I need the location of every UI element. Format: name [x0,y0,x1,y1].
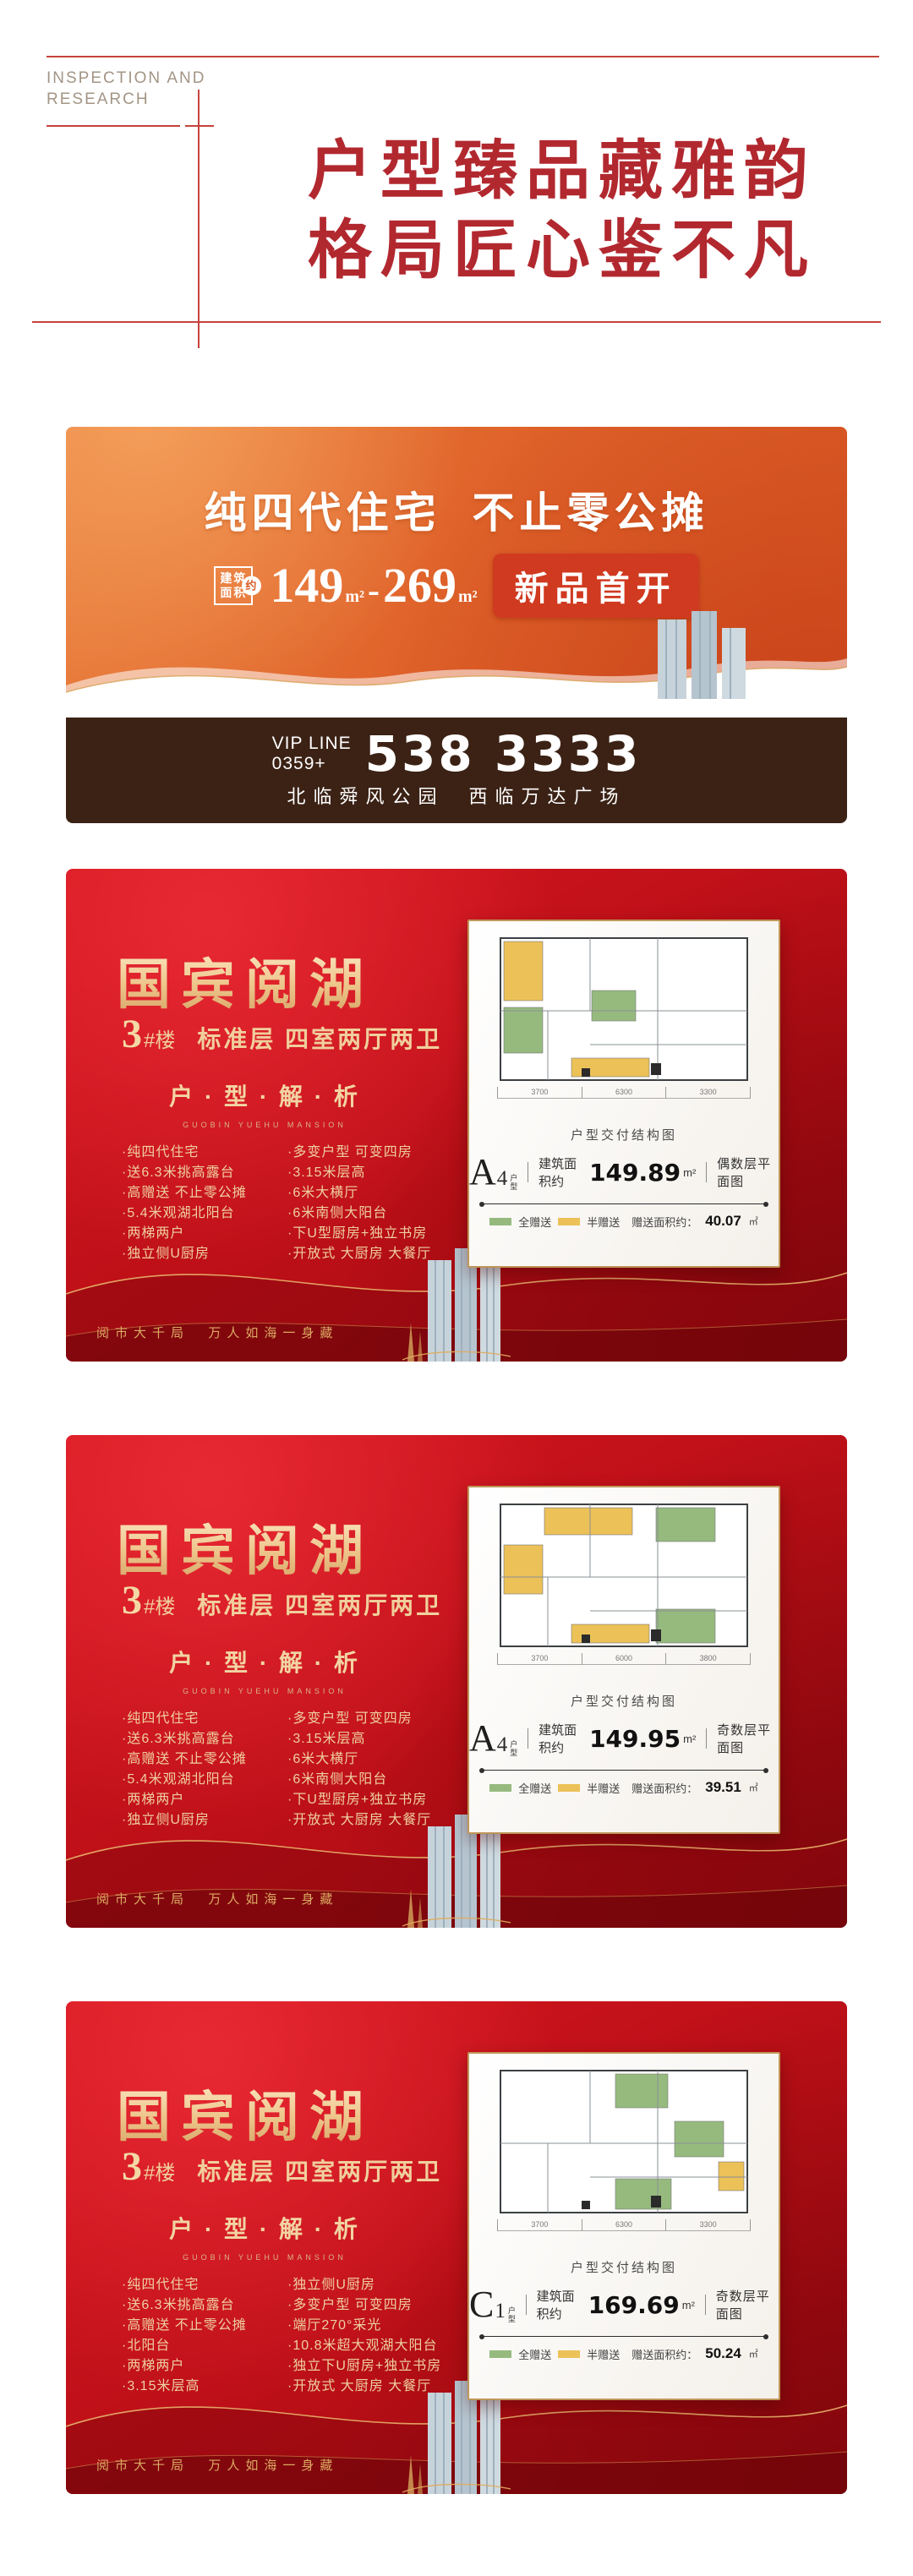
plan-legend: 全赠送 半赠送 赠送面积约： 40.07 ㎡ [469,1213,779,1230]
card-motto: 阅市大千局 万人如海一身藏 [96,1890,338,1907]
dimension-label: 3700 [497,2219,582,2231]
unit-letter: A [469,1720,496,1757]
section-heading: 户 · 型 · 解 · 析 GUOBIN YUEHU MANSION [117,2211,413,2262]
feature-item: ·两梯两户 [122,1224,247,1244]
feature-item: ·纯四代住宅 [122,1709,247,1729]
legend-half-swatch [558,1784,580,1792]
feature-item: ·两梯两户 [122,1790,247,1810]
feature-item: ·10.8米超大观湖大阳台 [287,2336,441,2356]
plan-room-half-gift [504,941,543,1001]
unit-label-1: 户 [508,2306,516,2315]
block-line: 3 #楼 标准层 四室两厅两卫 [122,2143,442,2190]
feature-item: ·高赠送 不止零公摊 [122,2316,247,2336]
area-to: 269 [383,561,456,610]
gift-area-value: 40.07 [705,1213,741,1230]
plan-room-half-gift [719,2162,744,2191]
plan-caption: 户型交付结构图 [469,2258,779,2276]
legend-full-swatch [489,2350,511,2358]
feature-item: ·3.15米层高 [287,1729,431,1749]
features-left: ·纯四代住宅·送6.3米挑高露台·高赠送 不止零公摊·5.4米观湖北阳台·两梯两… [122,1709,247,1831]
legend-half-label: 半赠送 [587,2346,620,2362]
vip-area-code: 0359+ [272,754,352,774]
divider [526,2295,527,2315]
plan-room-full-gift [504,1007,543,1053]
unit-type-label: 户 型 [510,1174,517,1191]
legend-full-label: 全赠送 [518,2346,551,2362]
block-suffix: #楼 [144,1590,175,1619]
unit-type-row: A 4 户 型 建筑面积约 149.89 m² 偶数层平面图 [469,1154,779,1191]
gift-area-value: 50.24 [705,2345,741,2362]
feature-item: ·送6.3米挑高露台 [122,1729,247,1749]
divider [528,1728,528,1749]
plan-legend: 全赠送 半赠送 赠送面积约： 50.24 ㎡ [469,2345,779,2362]
block-line: 3 #楼 标准层 四室两厅两卫 [122,1011,442,1057]
gift-area-label: 赠送面积约： [631,1214,697,1230]
feature-item: ·3.15米层高 [287,1163,431,1183]
dimension-label: 6300 [582,2219,666,2231]
project-title: 国宾阅湖 [117,1508,374,1585]
floor-type-label: 偶数层平面图 [717,1154,779,1190]
unit-area-unit: m² [683,1166,696,1179]
area-label-box: 建筑 面积 约 [214,566,253,605]
unit-label-2: 型 [508,2315,516,2323]
block-subtitle: 标准层 四室两厅两卫 [197,1021,442,1055]
floor-plan-panel: 370063003300 户型交付结构图 C 1 户 型 建筑面积约 169.6… [467,2052,780,2400]
vip-phone-number: 538 3333 [365,729,642,778]
dimension-label: 6300 [582,1087,666,1099]
floor-type-label: 奇数层平面图 [716,2287,779,2322]
divider [528,1162,528,1182]
feature-item: ·纯四代住宅 [122,2275,247,2295]
location-line: 北临舜风公园 西临万达广场 [66,782,847,809]
legend-full-label: 全赠送 [518,1214,551,1230]
area-dash: - [368,570,380,611]
gift-area-label: 赠送面积约： [631,1780,697,1796]
plan-divider [481,2336,767,2337]
unit-cards: 国宾阅湖 3 #楼 标准层 四室两厅两卫 户 · 型 · 解 · 析 GUOBI… [66,869,847,2568]
feature-item: ·独立侧U厨房 [287,2275,441,2295]
plan-room-full-gift [675,2121,724,2157]
section-subtitle: GUOBIN YUEHU MANSION [117,1687,413,1695]
unit-card: 国宾阅湖 3 #楼 标准层 四室两厅两卫 户 · 型 · 解 · 析 GUOBI… [66,2001,847,2494]
features-left: ·纯四代住宅·送6.3米挑高露台·高赠送 不止零公摊·5.4米观湖北阳台·两梯两… [122,1143,247,1264]
feature-item: ·送6.3米挑高露台 [122,1163,247,1183]
features-left: ·纯四代住宅·送6.3米挑高露台·高赠送 不止零公摊·北阳台·两梯两户·3.15… [122,2275,247,2397]
section-title: 户 · 型 · 解 · 析 [117,1078,413,1112]
crosshair-vertical-line [198,90,200,348]
unit-letter: A [469,1154,496,1191]
unit-letter: C [469,2286,494,2323]
unit-number: 4 [497,1167,508,1191]
plan-caption: 户型交付结构图 [469,1126,779,1143]
plan-dimensions: 370063003300 [497,2219,751,2231]
banner-headline: 纯四代住宅 不止零公摊 [66,479,847,540]
feature-item: ·高赠送 不止零公摊 [122,1183,247,1203]
crosshair-tick [185,125,214,127]
page-title-line2: 格局匠心鉴不凡 [308,215,817,287]
feature-item: ·送6.3米挑高露台 [122,2295,247,2316]
eyebrow-underline [46,125,180,127]
unit-area-label: 建筑面积约 [537,2287,586,2322]
floor-plan-drawing [497,1501,751,1650]
eyebrow-label: INSPECTION AND RESEARCH [46,68,205,110]
plan-room-full-gift [656,1508,715,1542]
plan-divider [481,1770,767,1771]
dimension-label: 3300 [665,1087,750,1099]
feature-item: ·多变户型 可变四房 [287,1709,431,1729]
vip-labels: VIP LINE 0359+ [272,734,352,774]
dimension-label: 3700 [497,1653,582,1665]
unit-label-2: 型 [510,1182,517,1191]
divider [706,1728,707,1749]
plan-caption: 户型交付结构图 [469,1692,779,1710]
eyebrow-line1: INSPECTION AND [46,68,205,89]
floor-plan-drawing [497,935,751,1083]
feature-item: ·端厅270°采光 [287,2316,441,2336]
top-rule-line [46,56,879,57]
gift-area-label: 赠送面积约： [631,2346,697,2362]
unit-label-1: 户 [510,1174,517,1182]
dimension-label: 3800 [665,1653,750,1665]
promo-banner-orange: 纯四代住宅 不止零公摊 建筑 面积 约 149 m² - 269 m² [66,427,847,718]
buildings-illustration [658,611,746,699]
feature-item: ·独立侧U厨房 [122,1810,247,1831]
section-title: 户 · 型 · 解 · 析 [117,2211,413,2245]
area-from-unit: m² [345,587,364,607]
dimension-label: 6000 [582,1653,666,1665]
legend-half-label: 半赠送 [587,1780,620,1796]
mid-rule-line [32,321,881,323]
vip-line-label: VIP LINE [272,734,352,754]
page-title: 户型臻品藏雅韵 格局匠心鉴不凡 [211,132,913,291]
block-number: 3 [122,2143,142,2190]
section-heading: 户 · 型 · 解 · 析 GUOBIN YUEHU MANSION [117,1078,413,1129]
unit-label-2: 型 [510,1749,517,1757]
card-motto: 阅市大千局 万人如海一身藏 [96,1323,338,1341]
plan-room-full-gift [656,1609,715,1643]
unit-number: 1 [495,2300,506,2323]
legend-half-swatch [558,1218,580,1225]
unit-label-1: 户 [510,1740,517,1749]
plan-room-half-gift [544,1508,632,1535]
feature-item: ·3.15米层高 [122,2377,247,2397]
plan-room-full-gift [592,991,636,1021]
gift-area-unit: ㎡ [749,1214,758,1228]
gift-area-unit: ㎡ [749,2347,758,2360]
feature-item: ·5.4米观湖北阳台 [122,1203,247,1224]
unit-number: 4 [497,1733,508,1757]
divider [706,1162,707,1182]
unit-area-value: 149.89 [589,1159,681,1187]
plan-divider [481,1203,767,1204]
area-range: 建筑 面积 约 149 m² - 269 m² [214,561,477,611]
feature-item: ·独立侧U厨房 [122,1244,247,1264]
unit-card: 国宾阅湖 3 #楼 标准层 四室两厅两卫 户 · 型 · 解 · 析 GUOBI… [66,1435,847,1928]
unit-area-value: 169.69 [588,2291,680,2319]
unit-area-label: 建筑面积约 [539,1154,587,1190]
project-title: 国宾阅湖 [117,941,374,1019]
page-title-line1: 户型臻品藏雅韵 [308,135,817,207]
eyebrow-line2: RESEARCH [46,89,205,110]
feature-item: ·6米南侧大阳台 [287,1770,431,1790]
divider [705,2295,706,2315]
floor-plan-drawing [497,2067,751,2216]
legend-half-label: 半赠送 [587,1214,620,1230]
plan-room-full-gift [615,2074,668,2108]
block-suffix: #楼 [144,1023,175,1053]
unit-area-unit: m² [682,2299,695,2311]
promo-banner: 纯四代住宅 不止零公摊 建筑 面积 约 149 m² - 269 m² [66,427,847,823]
plan-room-half-gift [504,1545,543,1594]
vip-row: VIP LINE 0359+ 538 3333 [66,718,847,778]
gift-area-value: 39.51 [705,1779,741,1796]
contact-band: VIP LINE 0359+ 538 3333 北临舜风公园 西临万达广场 [66,718,847,823]
feature-item: ·北阳台 [122,2336,247,2356]
wave-decoration [66,608,847,718]
block-subtitle: 标准层 四室两厅两卫 [197,1587,442,1621]
card-motto: 阅市大千局 万人如海一身藏 [96,2456,338,2474]
block-line: 3 #楼 标准层 四室两厅两卫 [122,1577,442,1624]
block-number: 3 [122,1577,142,1624]
block-suffix: #楼 [144,2156,175,2186]
dimension-label: 3700 [497,1087,582,1099]
unit-type-label: 户 型 [508,2306,516,2323]
plan-legend: 全赠送 半赠送 赠送面积约： 39.51 ㎡ [469,1779,779,1796]
unit-type-row: A 4 户 型 建筑面积约 149.95 m² 奇数层平面图 [469,1720,779,1757]
unit-type-row: C 1 户 型 建筑面积约 169.69 m² 奇数层平面图 [469,2286,779,2323]
project-title: 国宾阅湖 [117,2074,374,2152]
floor-plan-panel: 370063003300 户型交付结构图 A 4 户 型 建筑面积约 149.8… [467,920,780,1268]
poster-page: INSPECTION AND RESEARCH 户型臻品藏雅韵 格局匠心鉴不凡 … [0,0,913,2576]
feature-item: ·纯四代住宅 [122,1143,247,1163]
section-title: 户 · 型 · 解 · 析 [117,1645,413,1678]
area-to-unit: m² [458,587,478,607]
floor-plan-panel: 370060003800 户型交付结构图 A 4 户 型 建筑面积约 149.9… [467,1486,780,1834]
unit-type-label: 户 型 [510,1740,517,1757]
plan-room-full-gift [615,2179,671,2209]
approx-badge: 约 [242,576,261,596]
legend-half-swatch [558,2350,580,2358]
gift-area-unit: ㎡ [749,1781,758,1794]
unit-card: 国宾阅湖 3 #楼 标准层 四室两厅两卫 户 · 型 · 解 · 析 GUOBI… [66,869,847,1362]
plan-dimensions: 370060003800 [497,1653,751,1665]
legend-full-label: 全赠送 [518,1780,551,1796]
unit-area-value: 149.95 [589,1725,681,1753]
feature-item: ·6米大横厅 [287,1183,431,1203]
feature-item: ·6米南侧大阳台 [287,1203,431,1224]
block-number: 3 [122,1011,142,1057]
legend-full-swatch [489,1218,511,1225]
section-subtitle: GUOBIN YUEHU MANSION [117,1121,413,1129]
area-values: 149 m² - 269 m² [270,561,477,611]
area-from: 149 [270,561,343,610]
feature-item: ·高赠送 不止零公摊 [122,1749,247,1770]
feature-item: ·6米大横厅 [287,1749,431,1770]
feature-item: ·多变户型 可变四房 [287,2295,441,2316]
feature-item: ·5.4米观湖北阳台 [122,1770,247,1790]
unit-area-label: 建筑面积约 [539,1721,587,1756]
block-subtitle: 标准层 四室两厅两卫 [197,2153,442,2187]
feature-item: ·两梯两户 [122,2356,247,2377]
dimension-label: 3300 [665,2219,750,2231]
plan-dimensions: 370063003300 [497,1087,751,1099]
section-subtitle: GUOBIN YUEHU MANSION [117,2253,413,2262]
section-heading: 户 · 型 · 解 · 析 GUOBIN YUEHU MANSION [117,1645,413,1695]
floor-type-label: 奇数层平面图 [717,1721,779,1756]
unit-area-unit: m² [683,1733,696,1745]
legend-full-swatch [489,1784,511,1792]
feature-item: ·多变户型 可变四房 [287,1143,431,1163]
